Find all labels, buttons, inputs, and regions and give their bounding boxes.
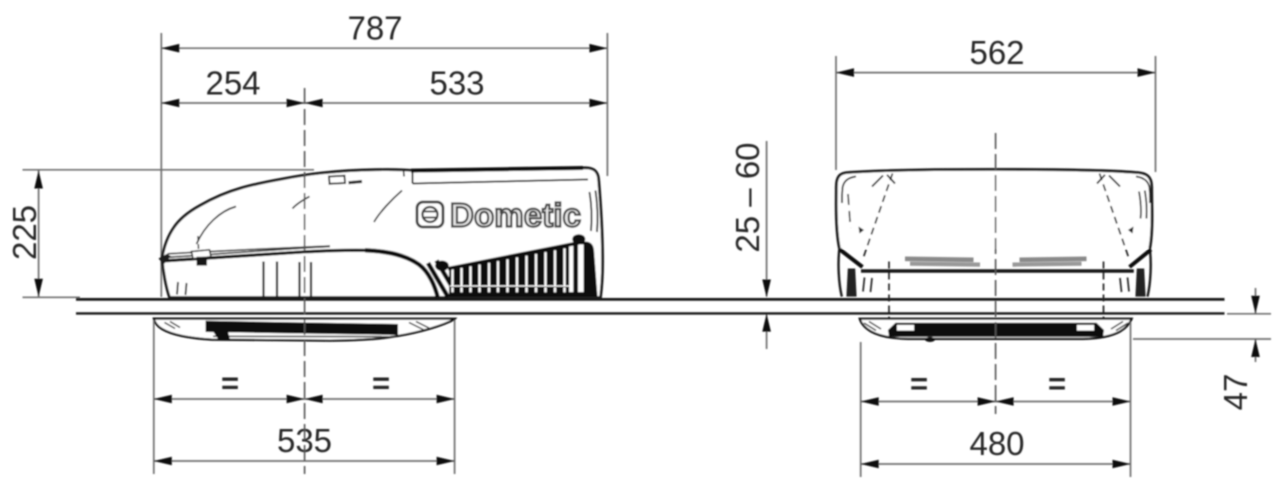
svg-text:=: =: [221, 366, 239, 401]
svg-text:=: =: [1048, 366, 1066, 401]
svg-text:480: 480: [969, 425, 1024, 462]
svg-text:47: 47: [1217, 374, 1254, 411]
svg-text:Dometic: Dometic: [450, 197, 581, 234]
svg-text:562: 562: [969, 34, 1024, 71]
svg-text:254: 254: [205, 65, 260, 102]
svg-text:225: 225: [6, 205, 43, 260]
svg-text:787: 787: [347, 10, 402, 47]
svg-text:25 – 60: 25 – 60: [729, 142, 766, 252]
svg-text:=: =: [372, 366, 390, 401]
svg-text:533: 533: [429, 65, 484, 102]
svg-text:=: =: [910, 366, 928, 401]
